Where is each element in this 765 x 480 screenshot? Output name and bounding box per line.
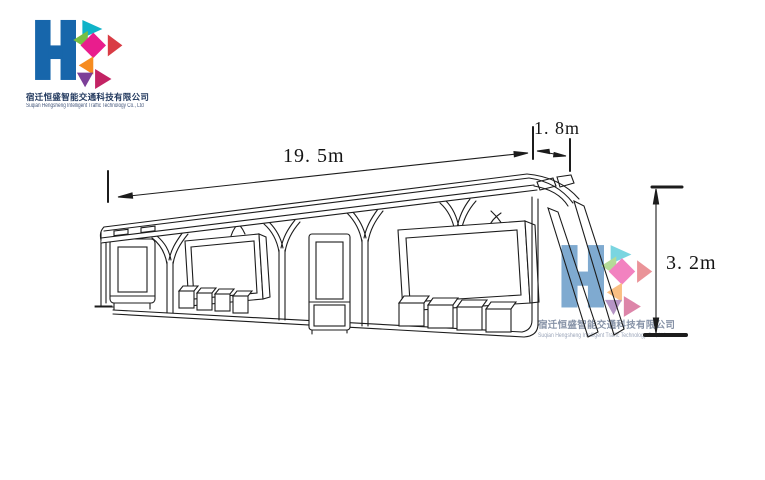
center-totem-panel: [309, 234, 350, 334]
dimension-label-length: 19. 5m: [283, 145, 345, 168]
company-name-en: Suqian Hengsheng Intelligent Traffic Tec…: [26, 103, 144, 110]
dimension-label-height: 3. 2m: [666, 252, 717, 275]
company-logo: 宿迁恒盛智能交通科技有限公司 Suqian Hengsheng Intellig…: [26, 18, 144, 109]
company-name-cn: 宿迁恒盛智能交通科技有限公司: [26, 93, 149, 103]
right-end-legs: [527, 174, 624, 337]
hs-monogram-h: [35, 20, 76, 80]
hs-monogram-s-triangles: [73, 20, 122, 89]
hs-logo-icon: [26, 18, 126, 91]
drawing-page: 宿迁恒盛智能交通科技有限公司 Suqian Hengsheng Intellig…: [0, 0, 765, 480]
dimension-label-depth: 1. 8m: [534, 118, 580, 139]
left-end-sign: [95, 232, 155, 310]
